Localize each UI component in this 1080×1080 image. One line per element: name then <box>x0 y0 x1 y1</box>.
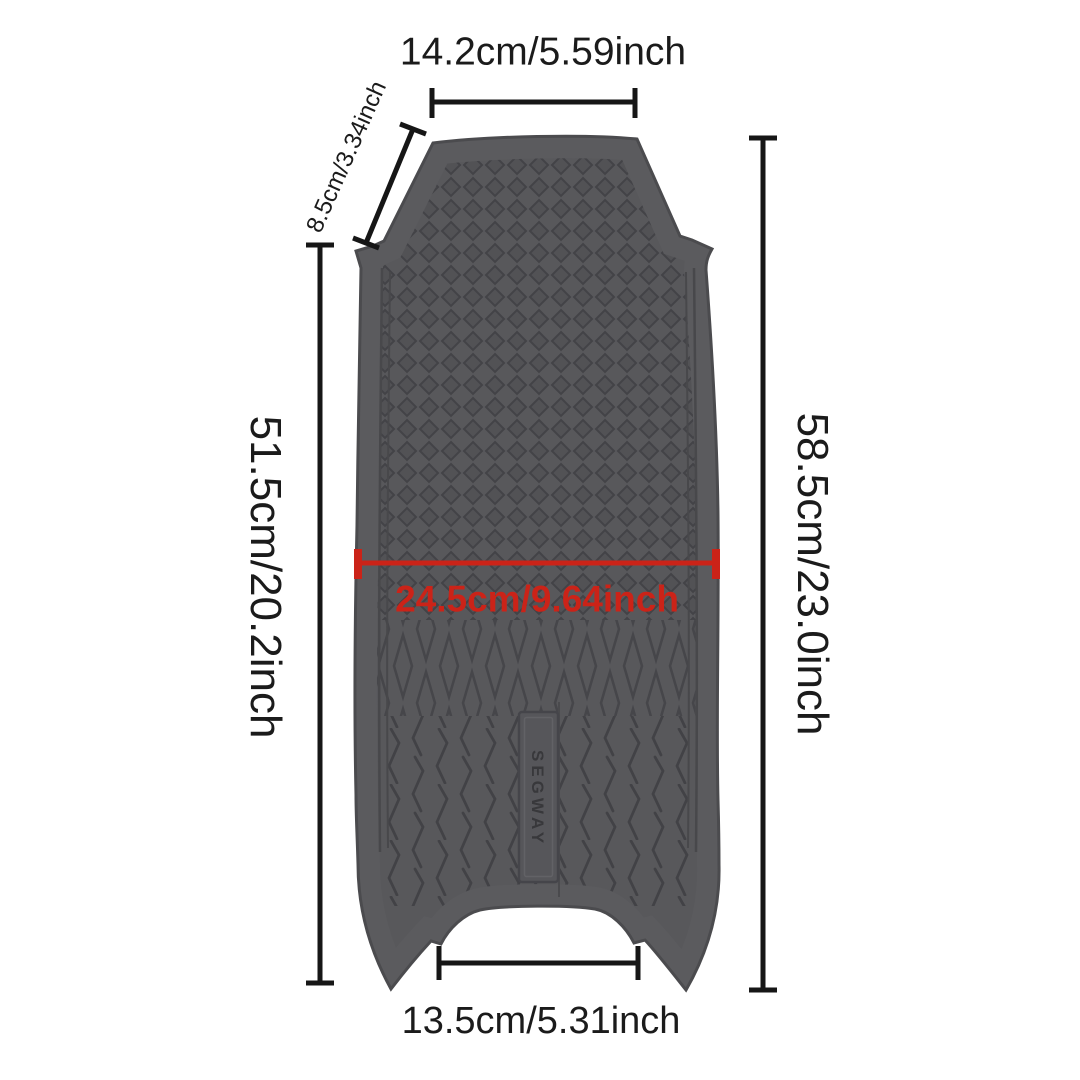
mat-texture-chain <box>348 620 730 716</box>
diagram-graphic: SEGWAY <box>0 0 1080 1080</box>
label-right-height: 58.5cm/23.0inch <box>790 413 834 736</box>
dimension-line-right-height <box>749 138 777 990</box>
dimension-line-top-width <box>432 88 635 118</box>
brand-logo-text: SEGWAY <box>528 750 547 847</box>
dimension-line-left-height <box>306 245 334 983</box>
label-left-height: 51.5cm/20.2inch <box>243 416 287 739</box>
label-bottom-width: 13.5cm/5.31inch <box>402 1002 681 1040</box>
label-middle-width: 24.5cm/9.64inch <box>395 581 679 618</box>
label-top-width: 14.2cm/5.59inch <box>400 33 686 72</box>
dimension-line-bottom-width <box>439 946 638 980</box>
product-dimension-diagram: SEGWAY <box>0 0 1080 1080</box>
